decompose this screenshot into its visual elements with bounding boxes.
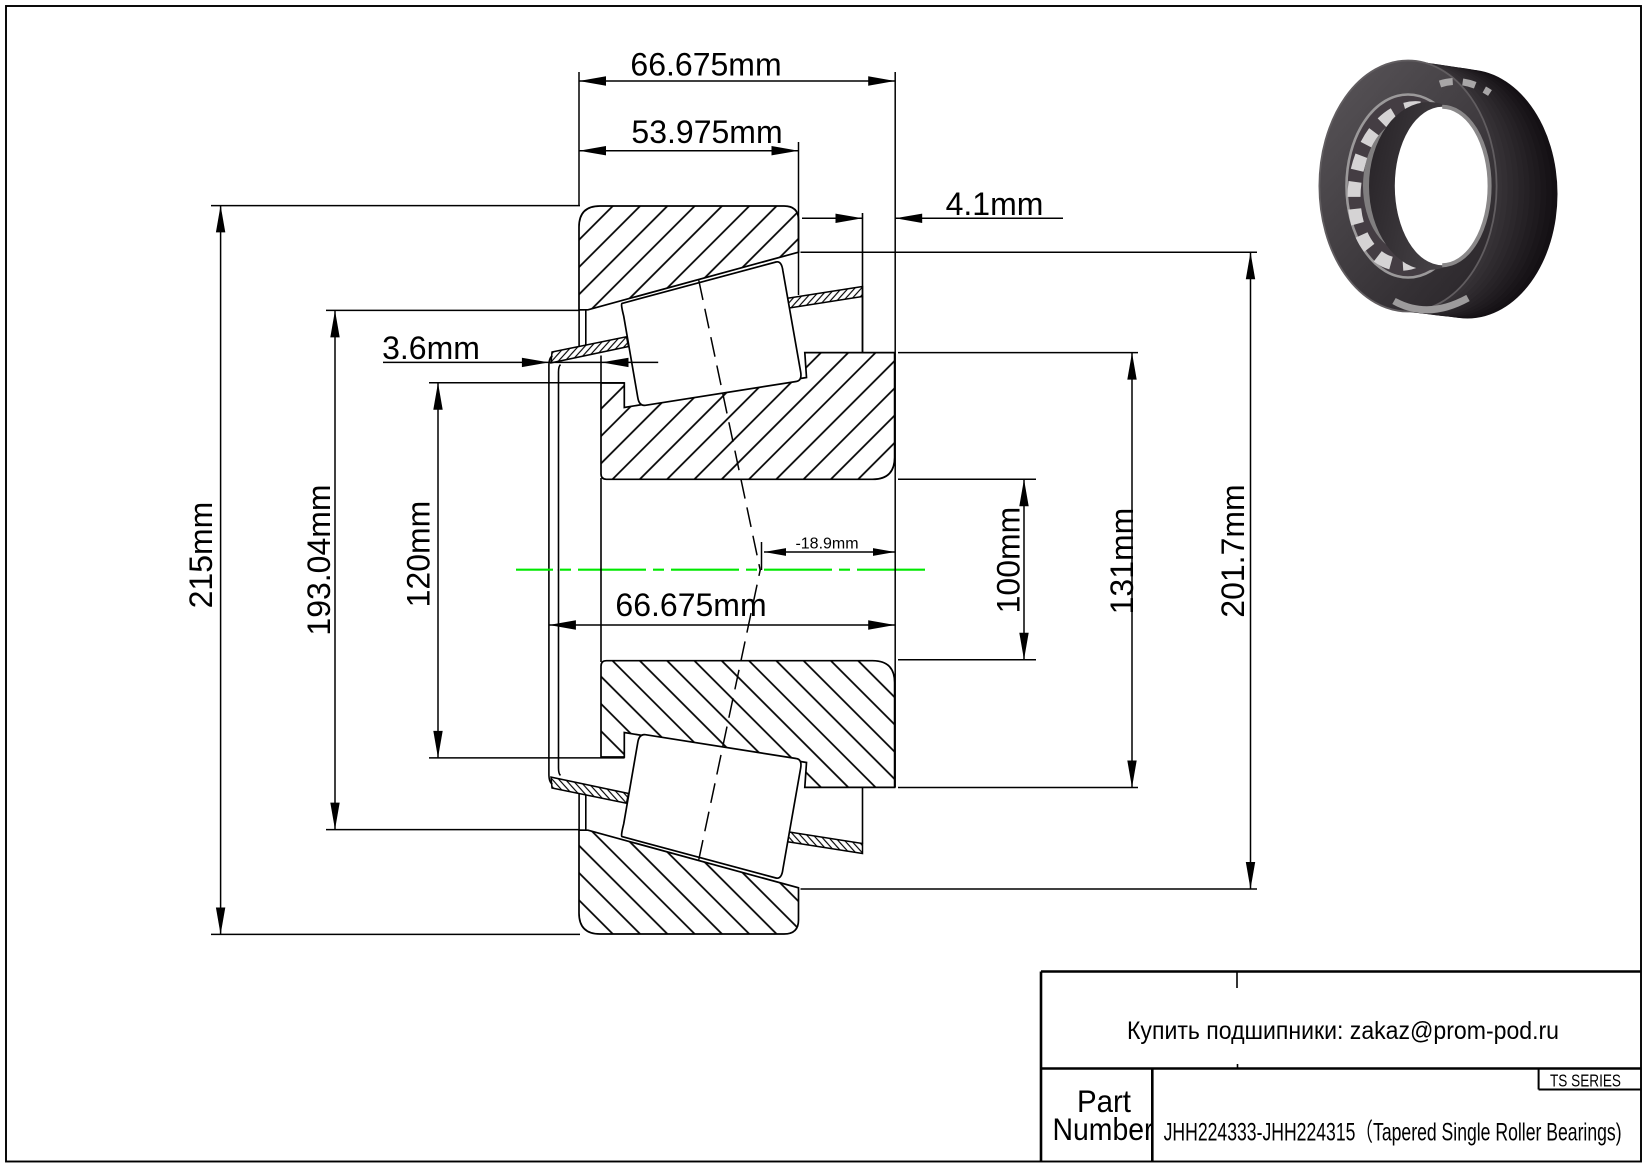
svg-text:100mm: 100mm [991, 507, 1027, 614]
svg-text:120mm: 120mm [401, 501, 437, 608]
svg-text:Number: Number [1053, 1111, 1154, 1147]
svg-text:66.675mm: 66.675mm [615, 587, 766, 623]
svg-text:-18.9mm: -18.9mm [795, 536, 858, 553]
svg-text:3.6mm: 3.6mm [382, 330, 480, 366]
svg-text:66.675mm: 66.675mm [630, 47, 781, 83]
svg-text:193.04mm: 193.04mm [301, 484, 337, 635]
svg-text:4.1mm: 4.1mm [946, 186, 1044, 222]
svg-text:TS SERIES: TS SERIES [1550, 1071, 1621, 1091]
svg-text:131mm: 131mm [1104, 508, 1140, 615]
svg-text:JHH224333-JHH224315（Tapered Si: JHH224333-JHH224315（Tapered Single Rolle… [1164, 1119, 1622, 1147]
svg-text:215mm: 215mm [183, 502, 219, 609]
svg-text:201.7mm: 201.7mm [1215, 484, 1251, 617]
svg-text:53.975mm: 53.975mm [631, 114, 782, 150]
svg-text:Купить подшипники: zakaz@prom-: Купить подшипники: zakaz@prom-pod.ru [1127, 1017, 1559, 1045]
